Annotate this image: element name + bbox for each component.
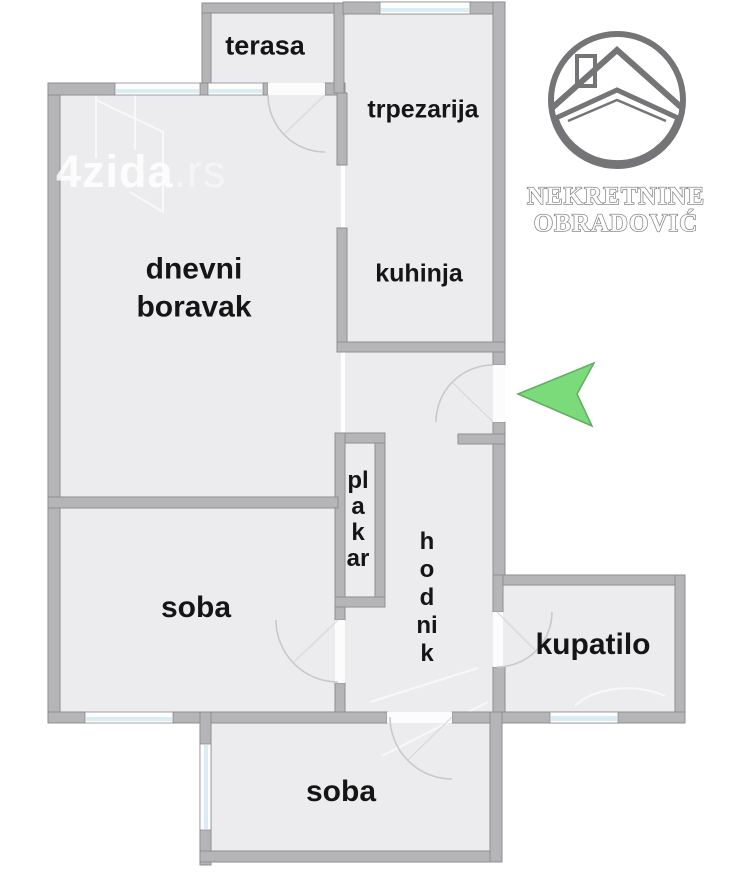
wall-terrace-top — [202, 3, 343, 13]
window-room-bottom — [200, 744, 211, 830]
wall-hall-bottom-seg-a — [211, 712, 387, 723]
wall-bottom-room-right — [490, 712, 502, 862]
watermark-domain: .rs — [174, 146, 227, 197]
door-gap-room-bottom — [387, 712, 452, 723]
room-label-plakar: plakar — [345, 468, 370, 572]
wall-closet-bottom — [335, 597, 385, 607]
watermark-brand: 4zida — [56, 146, 174, 197]
wall-closet-left — [335, 433, 345, 607]
wall-bath-left-lower — [493, 667, 505, 712]
wall-entry-stub — [458, 434, 505, 444]
door-gap-entrance — [493, 365, 505, 422]
wall-closet-right — [375, 443, 385, 597]
wall-right-exterior-upper — [493, 2, 505, 365]
wall-dining-left — [337, 93, 347, 165]
wall-terrace-right — [334, 3, 344, 93]
window-living-1 — [115, 83, 200, 95]
wall-top-seg-b — [200, 83, 208, 95]
door-gap-bathroom — [493, 612, 503, 667]
watermark: 4zida.rs — [56, 146, 227, 198]
floorplan-page: NEKRETNINE OBRADOVIĆ 4zida.rs terasa trp… — [0, 0, 744, 873]
floorplan-svg: NEKRETNINE OBRADOVIĆ — [0, 0, 744, 873]
window-dining — [380, 2, 470, 14]
wall-top-seg-c — [263, 83, 268, 95]
room-label-terasa: terasa — [225, 31, 305, 62]
wall-bottom-room-bottom — [200, 851, 502, 862]
wall-room-hall-seg-a — [335, 607, 345, 620]
entrance-arrow-icon — [518, 363, 594, 426]
wall-terrace-left — [202, 3, 211, 83]
wall-divider-living-room — [48, 497, 338, 508]
window-room-left — [85, 712, 173, 723]
logo-name-line1: NEKRETNINE — [527, 183, 705, 210]
wall-room-hall-seg-b — [335, 683, 345, 712]
room-label-hodnik: hodnik — [414, 528, 439, 668]
agency-logo: NEKRETNINE OBRADOVIĆ — [527, 34, 705, 237]
window-bathroom — [550, 712, 618, 723]
wall-bath-right — [675, 575, 685, 723]
wall-room-bottom-seg-a — [48, 712, 85, 723]
door-gap-room-left — [335, 620, 345, 683]
room-label-trpezarija: trpezarija — [367, 96, 478, 125]
wall-bath-top — [493, 575, 685, 585]
wall-top-seg-a — [48, 83, 115, 95]
wall-bath-left-upper — [493, 575, 503, 612]
window-living-2 — [208, 83, 263, 95]
room-label-dnevni-boravak: dnevni boravak — [107, 251, 282, 328]
wall-kitchen-left — [337, 228, 347, 342]
room-label-soba-bottom: soba — [306, 775, 376, 809]
room-label-kuhinja: kuhinja — [375, 260, 463, 289]
door-gap-terrace — [268, 83, 325, 95]
room-label-soba-left: soba — [161, 591, 231, 625]
logo-name-line2: OBRADOVIĆ — [534, 209, 699, 237]
wall-right-exterior-mid — [493, 422, 505, 575]
room-label-kupatilo: kupatilo — [535, 628, 650, 662]
wall-kitchen-bottom — [337, 342, 505, 352]
